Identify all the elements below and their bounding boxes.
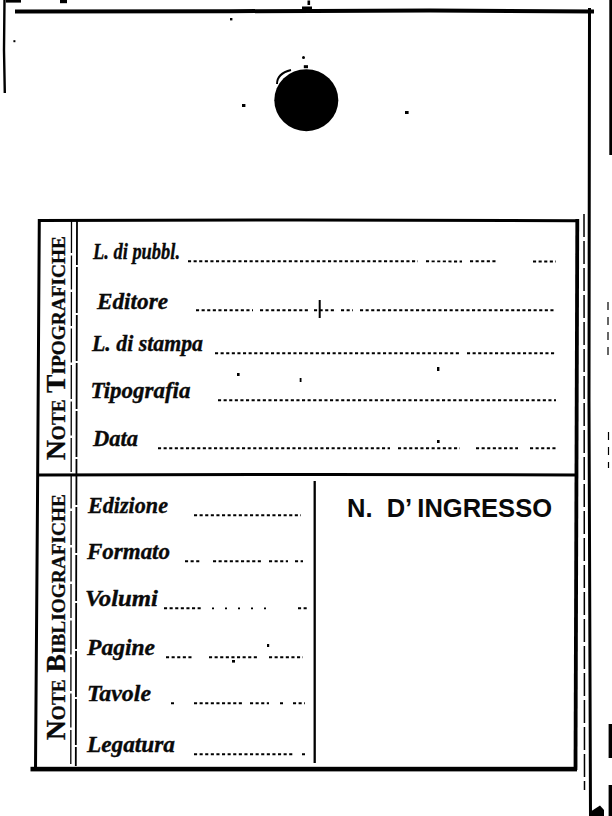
svg-text:Editore: Editore <box>96 289 168 314</box>
svg-text:N. D’ INGRESSO: N. D’ INGRESSO <box>347 494 552 522</box>
svg-text:Volumi: Volumi <box>85 586 159 611</box>
svg-text:L. di stampa: L. di stampa <box>91 331 203 356</box>
svg-text:Edizione: Edizione <box>87 493 168 518</box>
svg-text:L. di pubbl.: L. di pubbl. <box>92 239 180 264</box>
svg-text:Tavole: Tavole <box>87 681 151 706</box>
svg-text:Tipografia: Tipografia <box>91 378 191 403</box>
svg-text:Legatura: Legatura <box>86 732 175 757</box>
svg-text:Formato: Formato <box>86 539 170 564</box>
svg-text:Note Bibliografiche: Note Bibliografiche <box>41 494 71 740</box>
svg-text:Pagine: Pagine <box>86 635 155 660</box>
svg-text:Data: Data <box>92 426 138 451</box>
svg-text:Note Tipografiche: Note Tipografiche <box>41 236 71 460</box>
